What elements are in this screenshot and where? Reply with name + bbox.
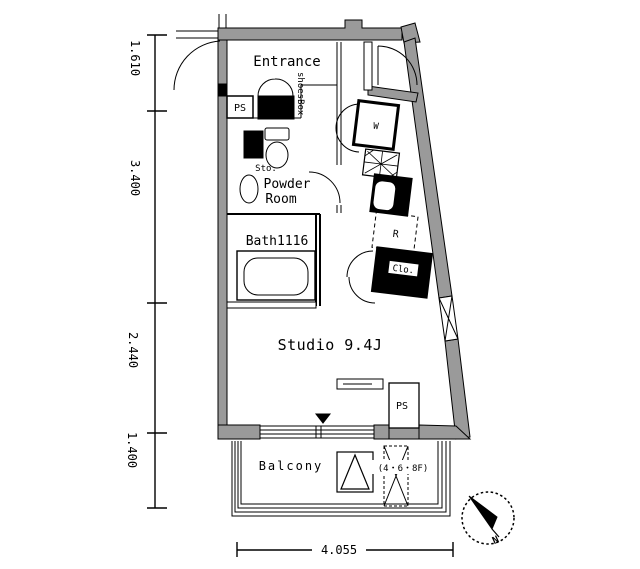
sink-bowl (372, 180, 396, 211)
powder-room-area: Sto. Powder Room (227, 42, 341, 306)
wall-bottom-left (218, 425, 260, 439)
corridor-wall (337, 42, 341, 213)
bath-area: Bath1116 (227, 234, 316, 308)
dim-bottom-label: 4.055 (321, 543, 357, 557)
studio-label: Studio 9.4J (278, 336, 383, 354)
bath-studio-wall (227, 302, 316, 308)
walls (218, 20, 470, 439)
wall-left (218, 40, 227, 432)
compass: N (462, 492, 514, 547)
storage-label: Sto. (255, 164, 277, 174)
dim-left-1: 1.610 (128, 40, 142, 76)
balcony-label: Balcony (259, 459, 324, 473)
wall-bottom-mid (374, 425, 389, 439)
wall-top (218, 20, 402, 40)
shoes-box-label: shoesBox (295, 72, 305, 116)
studio-area: Studio 9.4J PS (260, 336, 419, 438)
corridor-door-arc (309, 172, 340, 203)
wall-left-cap (218, 84, 227, 96)
entrance-outer-door-arc (174, 41, 220, 90)
ps-lower-label: PS (396, 401, 408, 412)
floor-plan-drawing: Entrance PS shoesBox Sto. Powder Room Ba… (0, 0, 640, 569)
washbasin (240, 175, 258, 203)
ps-upper-label: PS (234, 103, 246, 114)
washer-label: W (372, 122, 379, 133)
hatch-xbox-diagonals (384, 446, 408, 506)
dim-left-4: 1.400 (125, 432, 139, 468)
dim-left-3: 2.440 (126, 332, 140, 368)
compass-n-label: N (491, 534, 501, 547)
powder-room-label-1: Powder (264, 177, 311, 192)
compass-needle (469, 496, 497, 529)
evac-hatch-triangle (341, 455, 369, 489)
wall-diagonal-lower (445, 339, 470, 439)
shoes-box (258, 96, 294, 119)
studio-window (260, 426, 374, 438)
closet-door-arcs (347, 251, 375, 303)
bathtub-inner (244, 258, 308, 295)
wall-bottom-under-ps (389, 428, 419, 439)
toilet-tank (265, 128, 289, 140)
dim-left-2: 3.400 (128, 160, 142, 196)
dimension-left: 1.610 3.400 2.440 1.400 (125, 35, 167, 508)
pipe-shaft-black (244, 131, 263, 158)
fridge-label: R (392, 229, 400, 241)
dimension-bottom: 4.055 (237, 542, 453, 557)
bath-label: Bath1116 (246, 234, 309, 249)
dim-left-line (147, 35, 167, 508)
balcony-area: Balcony (4・6・8F) (232, 441, 450, 516)
hatch-floors-label: (4・6・8F) (378, 464, 429, 474)
powder-bath-wall (227, 214, 320, 306)
entrance-label: Entrance (253, 54, 320, 70)
shoes-box-door-arcs (258, 79, 293, 96)
window-marker-triangle (316, 414, 330, 423)
powder-room-label-2: Room (265, 192, 296, 207)
entry-door-jamb (364, 42, 372, 90)
floor-plan-page: Entrance PS shoesBox Sto. Powder Room Ba… (0, 0, 640, 569)
